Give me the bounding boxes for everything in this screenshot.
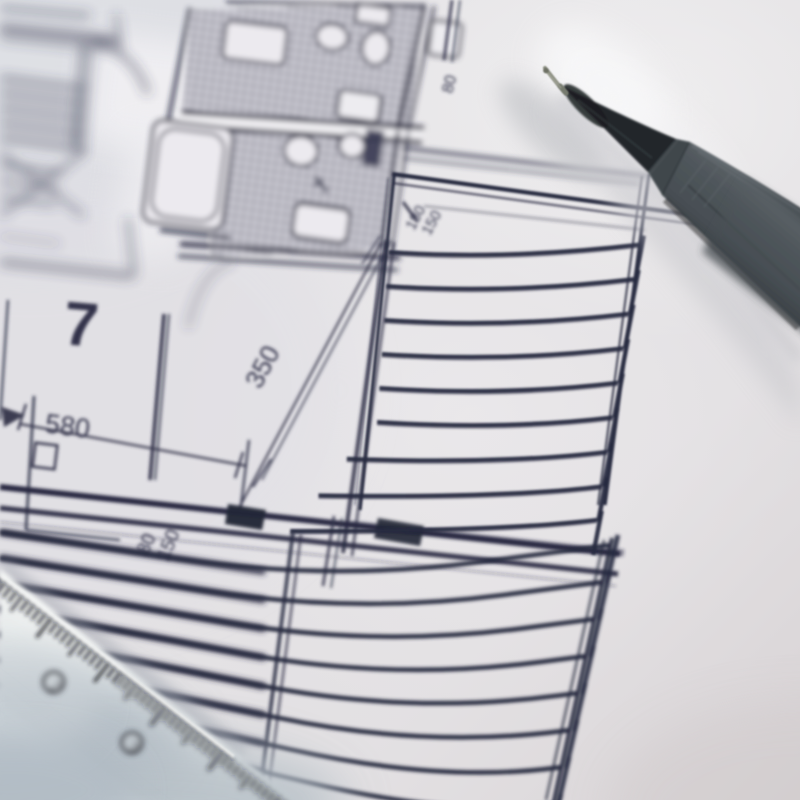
- svg-text:580: 580: [43, 408, 92, 444]
- svg-text:7: 7: [61, 289, 101, 361]
